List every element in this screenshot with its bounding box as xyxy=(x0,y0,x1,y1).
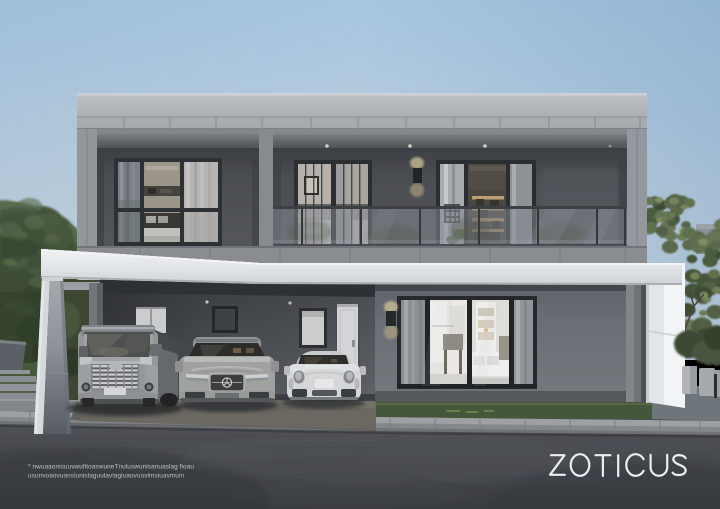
svg-text:usunvoaovuanslunislaguulavlagl: usunvoaovuanslunislaguulavlagluaovuovlms… xyxy=(28,473,184,480)
svg-text:* nwuaaonisuuvwufitoaswuneTnul: * nwuaaonisuuvwufitoaswuneTnuluswunisanu… xyxy=(28,464,194,471)
